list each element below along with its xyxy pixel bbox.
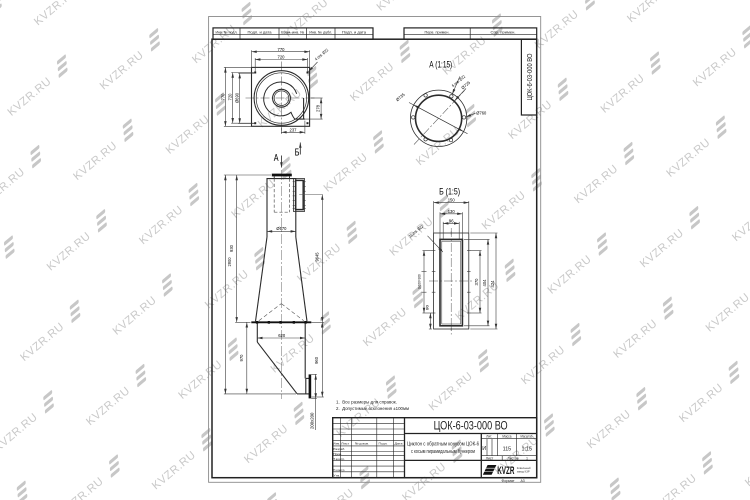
svg-text:ЦОК-6-03-000 ВО: ЦОК-6-03-000 ВО bbox=[434, 419, 508, 433]
svg-text:Пров.: Пров. bbox=[333, 452, 342, 456]
svg-text:1: 1 bbox=[526, 457, 528, 461]
svg-text:930: 930 bbox=[229, 245, 234, 252]
svg-text:Ковельный: Ковельный bbox=[517, 466, 531, 470]
svg-text:Подп. и дата: Подп. и дата bbox=[342, 30, 366, 34]
svg-text:Лит.: Лит. bbox=[486, 435, 492, 439]
svg-text:Перв. примен.: Перв. примен. bbox=[425, 30, 450, 34]
svg-text:770: 770 bbox=[220, 93, 226, 100]
svg-text:Дата: Дата bbox=[395, 441, 403, 445]
svg-text:1. Все размеры для справок.: 1. Все размеры для справок. bbox=[336, 400, 397, 405]
svg-text:1:15: 1:15 bbox=[522, 446, 533, 452]
svg-text:2. Допустимые отклонения ±100: 2. Допустимые отклонения ±100мм bbox=[336, 406, 409, 411]
svg-text:3х100=300: 3х100=300 bbox=[416, 274, 421, 290]
svg-text:Масса: Масса bbox=[502, 435, 511, 439]
svg-text:970: 970 bbox=[239, 354, 244, 361]
svg-text:Ø570: Ø570 bbox=[276, 226, 286, 232]
svg-text:№ докум.: № докум. bbox=[355, 441, 369, 445]
svg-text:Инв. № дубл.: Инв. № дубл. bbox=[309, 30, 332, 34]
svg-text:И: И bbox=[482, 446, 486, 452]
svg-text:Листов: Листов bbox=[508, 457, 519, 461]
svg-text:Ø735: Ø735 bbox=[395, 92, 406, 103]
svg-text:Ø690: Ø690 bbox=[235, 93, 241, 103]
svg-text:620: 620 bbox=[278, 333, 285, 339]
svg-text:Формат: Формат bbox=[502, 479, 515, 483]
svg-text:Ø760: Ø760 bbox=[476, 111, 487, 116]
svg-text:404: 404 bbox=[482, 279, 487, 286]
svg-text:с косым пирамидальным бункером: с косым пирамидальным бункером bbox=[411, 449, 475, 455]
svg-text:9645: 9645 bbox=[314, 252, 319, 261]
svg-text:завод КЗР: завод КЗР bbox=[517, 469, 530, 473]
svg-text:278: 278 bbox=[316, 105, 322, 112]
svg-text:Инв. № подл.: Инв. № подл. bbox=[216, 30, 238, 34]
svg-text:80: 80 bbox=[425, 304, 430, 310]
svg-text:Б (1:5): Б (1:5) bbox=[439, 187, 460, 197]
svg-text:Изм.: Изм. bbox=[333, 441, 340, 445]
svg-text:770: 770 bbox=[278, 47, 285, 53]
svg-text:200х200: 200х200 bbox=[309, 412, 314, 429]
svg-text:А3: А3 bbox=[521, 479, 525, 483]
svg-text:Разраб.: Разраб. bbox=[333, 447, 345, 451]
svg-text:Лист: Лист bbox=[341, 441, 350, 445]
svg-text:424: 424 bbox=[490, 280, 495, 287]
svg-text:Взам. инв. №: Взам. инв. № bbox=[281, 30, 304, 34]
svg-text:Спр. примен.: Спр. примен. bbox=[491, 30, 516, 34]
svg-text:KVZR: KVZR bbox=[497, 465, 514, 477]
svg-text:4 отв. Ø22: 4 отв. Ø22 bbox=[314, 47, 330, 61]
svg-text:А (1:15): А (1:15) bbox=[429, 59, 452, 69]
svg-text:Б: Б bbox=[295, 148, 300, 159]
svg-text:96: 96 bbox=[449, 219, 454, 225]
svg-text:2900: 2900 bbox=[227, 257, 232, 266]
svg-text:150: 150 bbox=[448, 198, 455, 204]
svg-text:Лист: Лист bbox=[486, 457, 494, 461]
svg-text:ЦОК-6-03-000 ВО: ЦОК-6-03-000 ВО bbox=[527, 53, 534, 100]
svg-text:Утв.: Утв. bbox=[333, 474, 340, 478]
svg-text:130: 130 bbox=[448, 209, 455, 215]
svg-text:370: 370 bbox=[474, 278, 479, 285]
svg-text:Масштаб: Масштаб bbox=[521, 435, 533, 439]
svg-text:Подп.: Подп. bbox=[379, 441, 388, 445]
svg-text:Подп. и дата: Подп. и дата bbox=[248, 30, 272, 34]
svg-text:720: 720 bbox=[278, 55, 285, 61]
svg-text:А: А bbox=[274, 153, 279, 164]
svg-text:960: 960 bbox=[314, 356, 319, 363]
svg-text:Циклон с обратным конусом ЦОК-: Циклон с обратным конусом ЦОК-6 bbox=[407, 442, 479, 448]
svg-text:Н.контр.: Н.контр. bbox=[333, 468, 345, 472]
svg-text:720: 720 bbox=[228, 93, 234, 100]
svg-text:237: 237 bbox=[290, 127, 297, 133]
svg-text:115: 115 bbox=[503, 446, 512, 452]
svg-text:Т.контр.: Т.контр. bbox=[333, 457, 345, 461]
